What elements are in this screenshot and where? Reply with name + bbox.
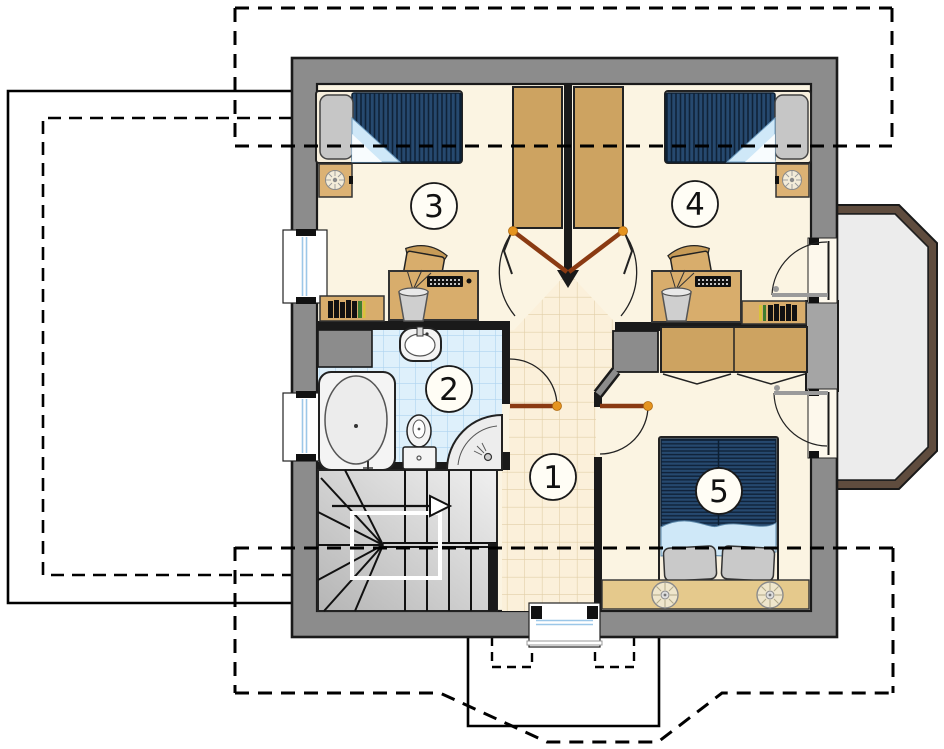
keyboard-room4-icon [695,276,731,287]
room-label-bedroom5: 5 [696,468,742,514]
floor-plan-drawing: 1 2 3 4 5 [0,0,944,749]
window-room3 [283,229,327,304]
wall-hall-room5 [594,457,602,612]
wall-room3-room4-spine [564,84,572,276]
wardrobe-room4 [574,87,623,228]
door-room4-handle [619,227,628,236]
room-label-hallway: 1 [530,454,576,500]
door-room5-handle [644,402,653,411]
lamp-room4-icon [783,171,802,190]
wall-bathroom-corner [502,452,510,470]
bed-room5-pillow-right [721,546,775,582]
room-number-1: 1 [543,460,563,496]
balcony-door-opening-room5 [808,389,837,458]
staircase [318,470,497,611]
nightstand-room4-knob [775,176,779,184]
balcony-floor [837,214,928,480]
wall-bathroom-east [502,330,510,404]
shelf-room4 [742,301,806,324]
room-number-5: 5 [709,474,729,510]
bed-room5-pillow-left [663,546,717,582]
wardrobe-room3 [513,87,562,228]
nightstand-room3-knob [349,176,353,184]
mouse-room3-icon [467,279,472,284]
pier-bathroom-nw [318,330,372,367]
bed-room4-pillow [775,95,808,159]
bed-room3-pillow [320,95,353,159]
bathtub-icon [319,372,395,471]
floor-plan: 1 2 3 4 5 [0,0,944,749]
room-label-bedroom3: 3 [411,183,457,229]
balcony-door-room5-handle [774,385,780,391]
room-number-2: 2 [439,372,459,408]
balcony-bay [837,205,937,489]
pouf-left-icon [652,582,678,608]
window-hallway [527,603,602,647]
keyboard-room3-icon [427,276,463,287]
room-number-3: 3 [424,189,444,225]
pier-balcony-middle [806,301,838,391]
shelf-room3 [320,296,384,321]
door-bathroom-handle [553,402,562,411]
room-number-4: 4 [685,187,705,223]
lamp-room3-icon [326,171,345,190]
balcony-door-room4-handle [773,286,779,292]
door-room3-handle [509,227,518,236]
room-label-bathroom: 2 [426,366,472,412]
room-label-bedroom4: 4 [672,181,718,227]
washbasin-icon [400,327,441,361]
pouf-right-icon [757,582,783,608]
pier-hall-room5 [613,331,658,372]
